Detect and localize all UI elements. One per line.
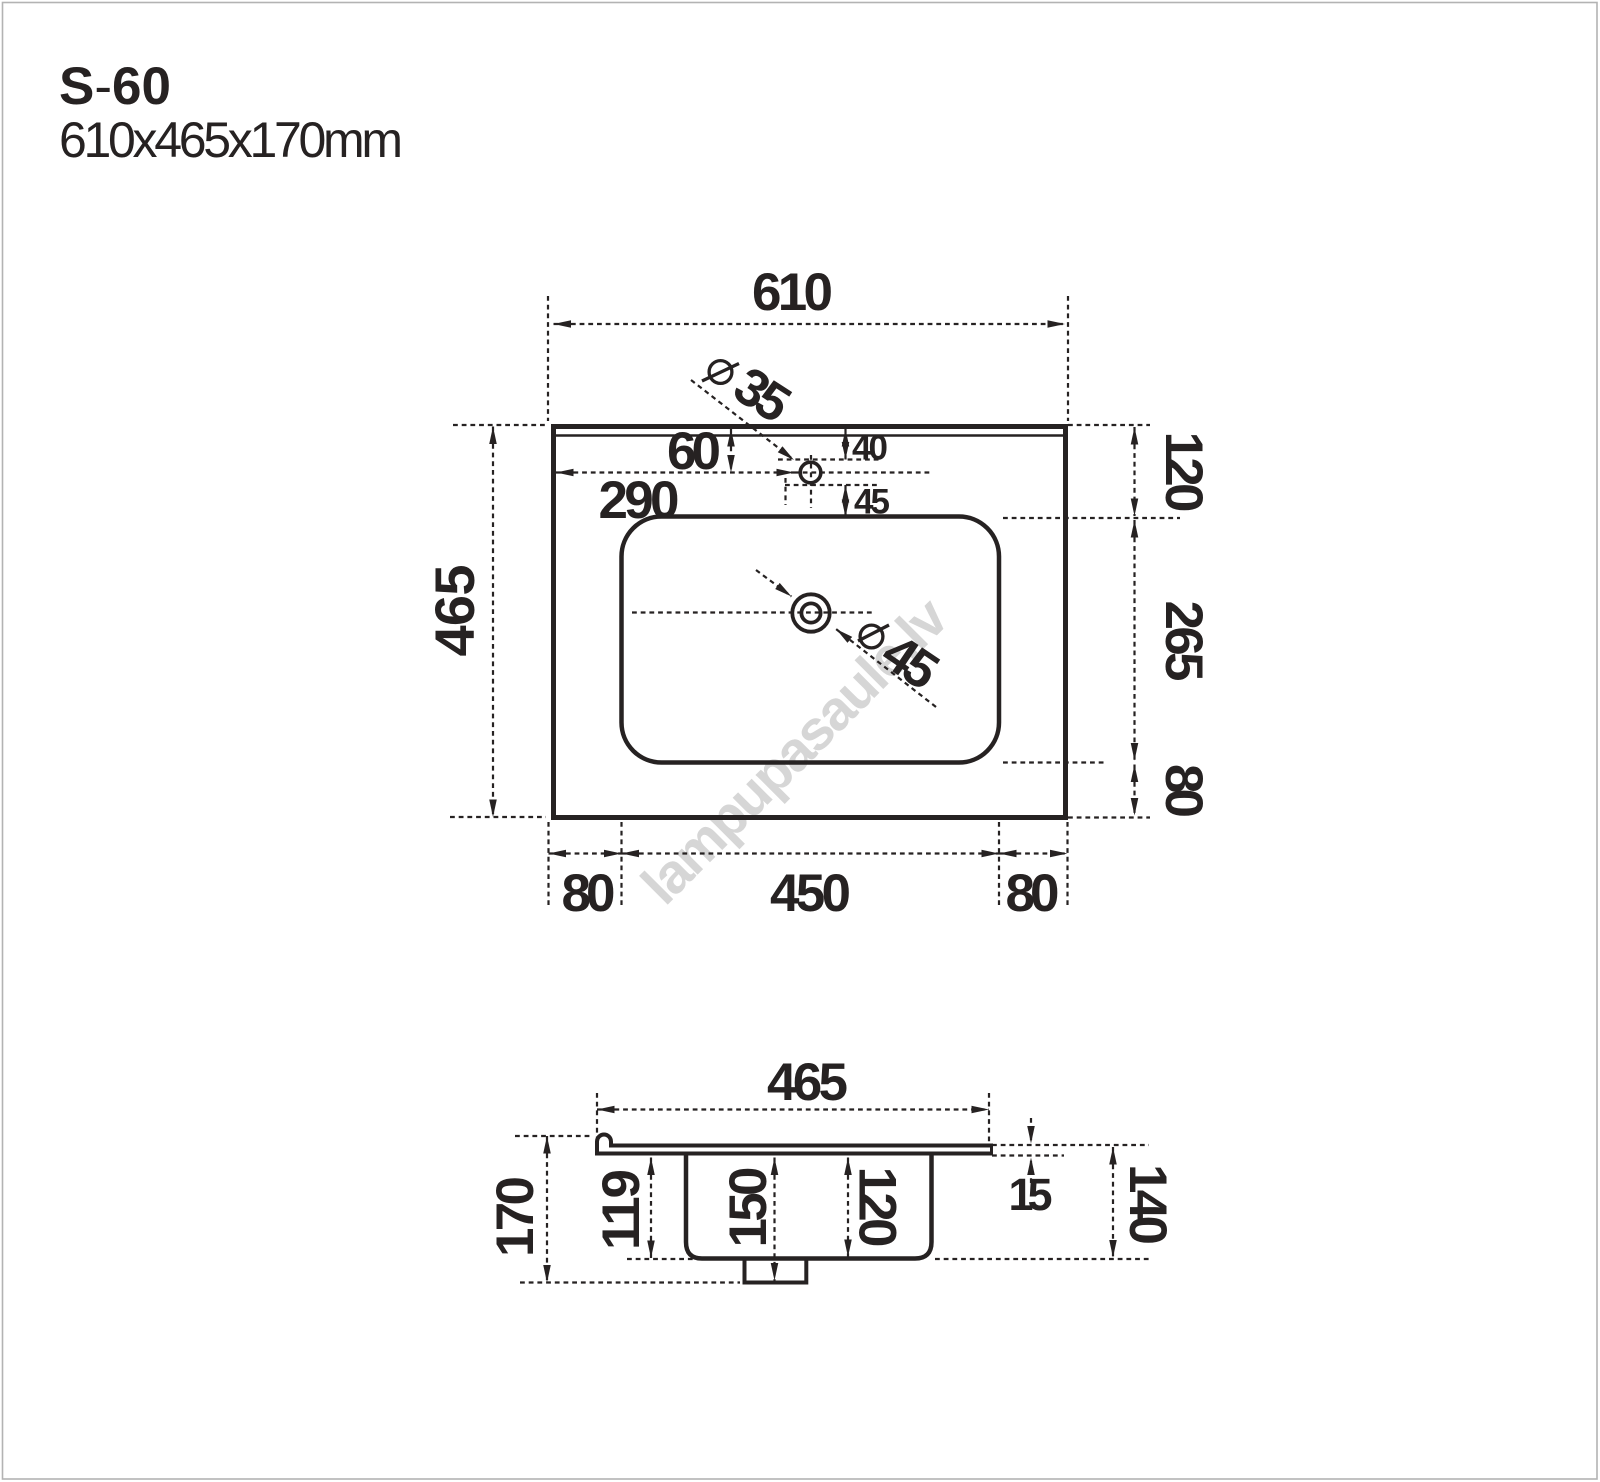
svg-text:40: 40	[852, 429, 888, 468]
svg-text:15: 15	[1009, 1169, 1053, 1220]
svg-text:265: 265	[1154, 601, 1213, 682]
svg-text:450: 450	[770, 864, 851, 923]
svg-text:80: 80	[1154, 764, 1213, 818]
svg-text:290: 290	[599, 471, 680, 530]
svg-text:120: 120	[848, 1167, 907, 1248]
svg-text:80: 80	[562, 864, 616, 923]
svg-text:119: 119	[592, 1169, 651, 1250]
svg-text:465: 465	[423, 565, 486, 657]
svg-text:80: 80	[1006, 864, 1060, 923]
svg-text:45: 45	[854, 483, 890, 522]
svg-text:140: 140	[1118, 1164, 1177, 1245]
svg-text:465: 465	[767, 1053, 848, 1112]
svg-text:150: 150	[719, 1167, 778, 1248]
svg-text:610x465x170mm: 610x465x170mm	[59, 112, 403, 168]
svg-text:120: 120	[1154, 432, 1213, 513]
svg-text:610: 610	[752, 263, 833, 322]
svg-text:S-60: S-60	[59, 57, 171, 116]
svg-text:170: 170	[486, 1176, 545, 1257]
